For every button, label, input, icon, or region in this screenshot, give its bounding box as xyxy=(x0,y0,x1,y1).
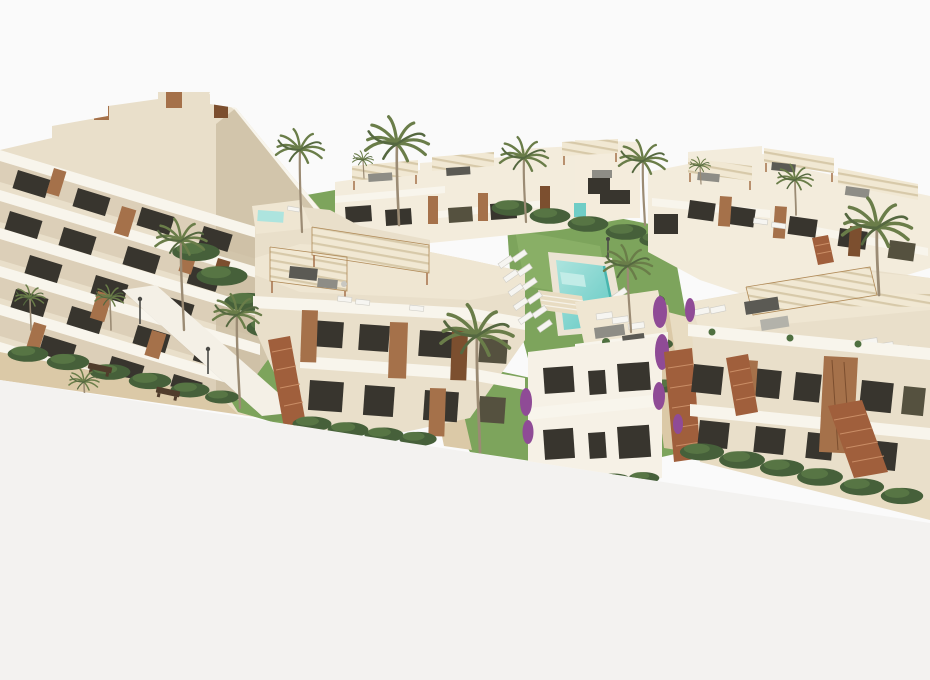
architectural-render xyxy=(0,0,930,680)
teal-glass-accent xyxy=(574,203,586,217)
terrace-plunge-pool xyxy=(257,210,284,223)
render-canvas xyxy=(0,0,930,680)
